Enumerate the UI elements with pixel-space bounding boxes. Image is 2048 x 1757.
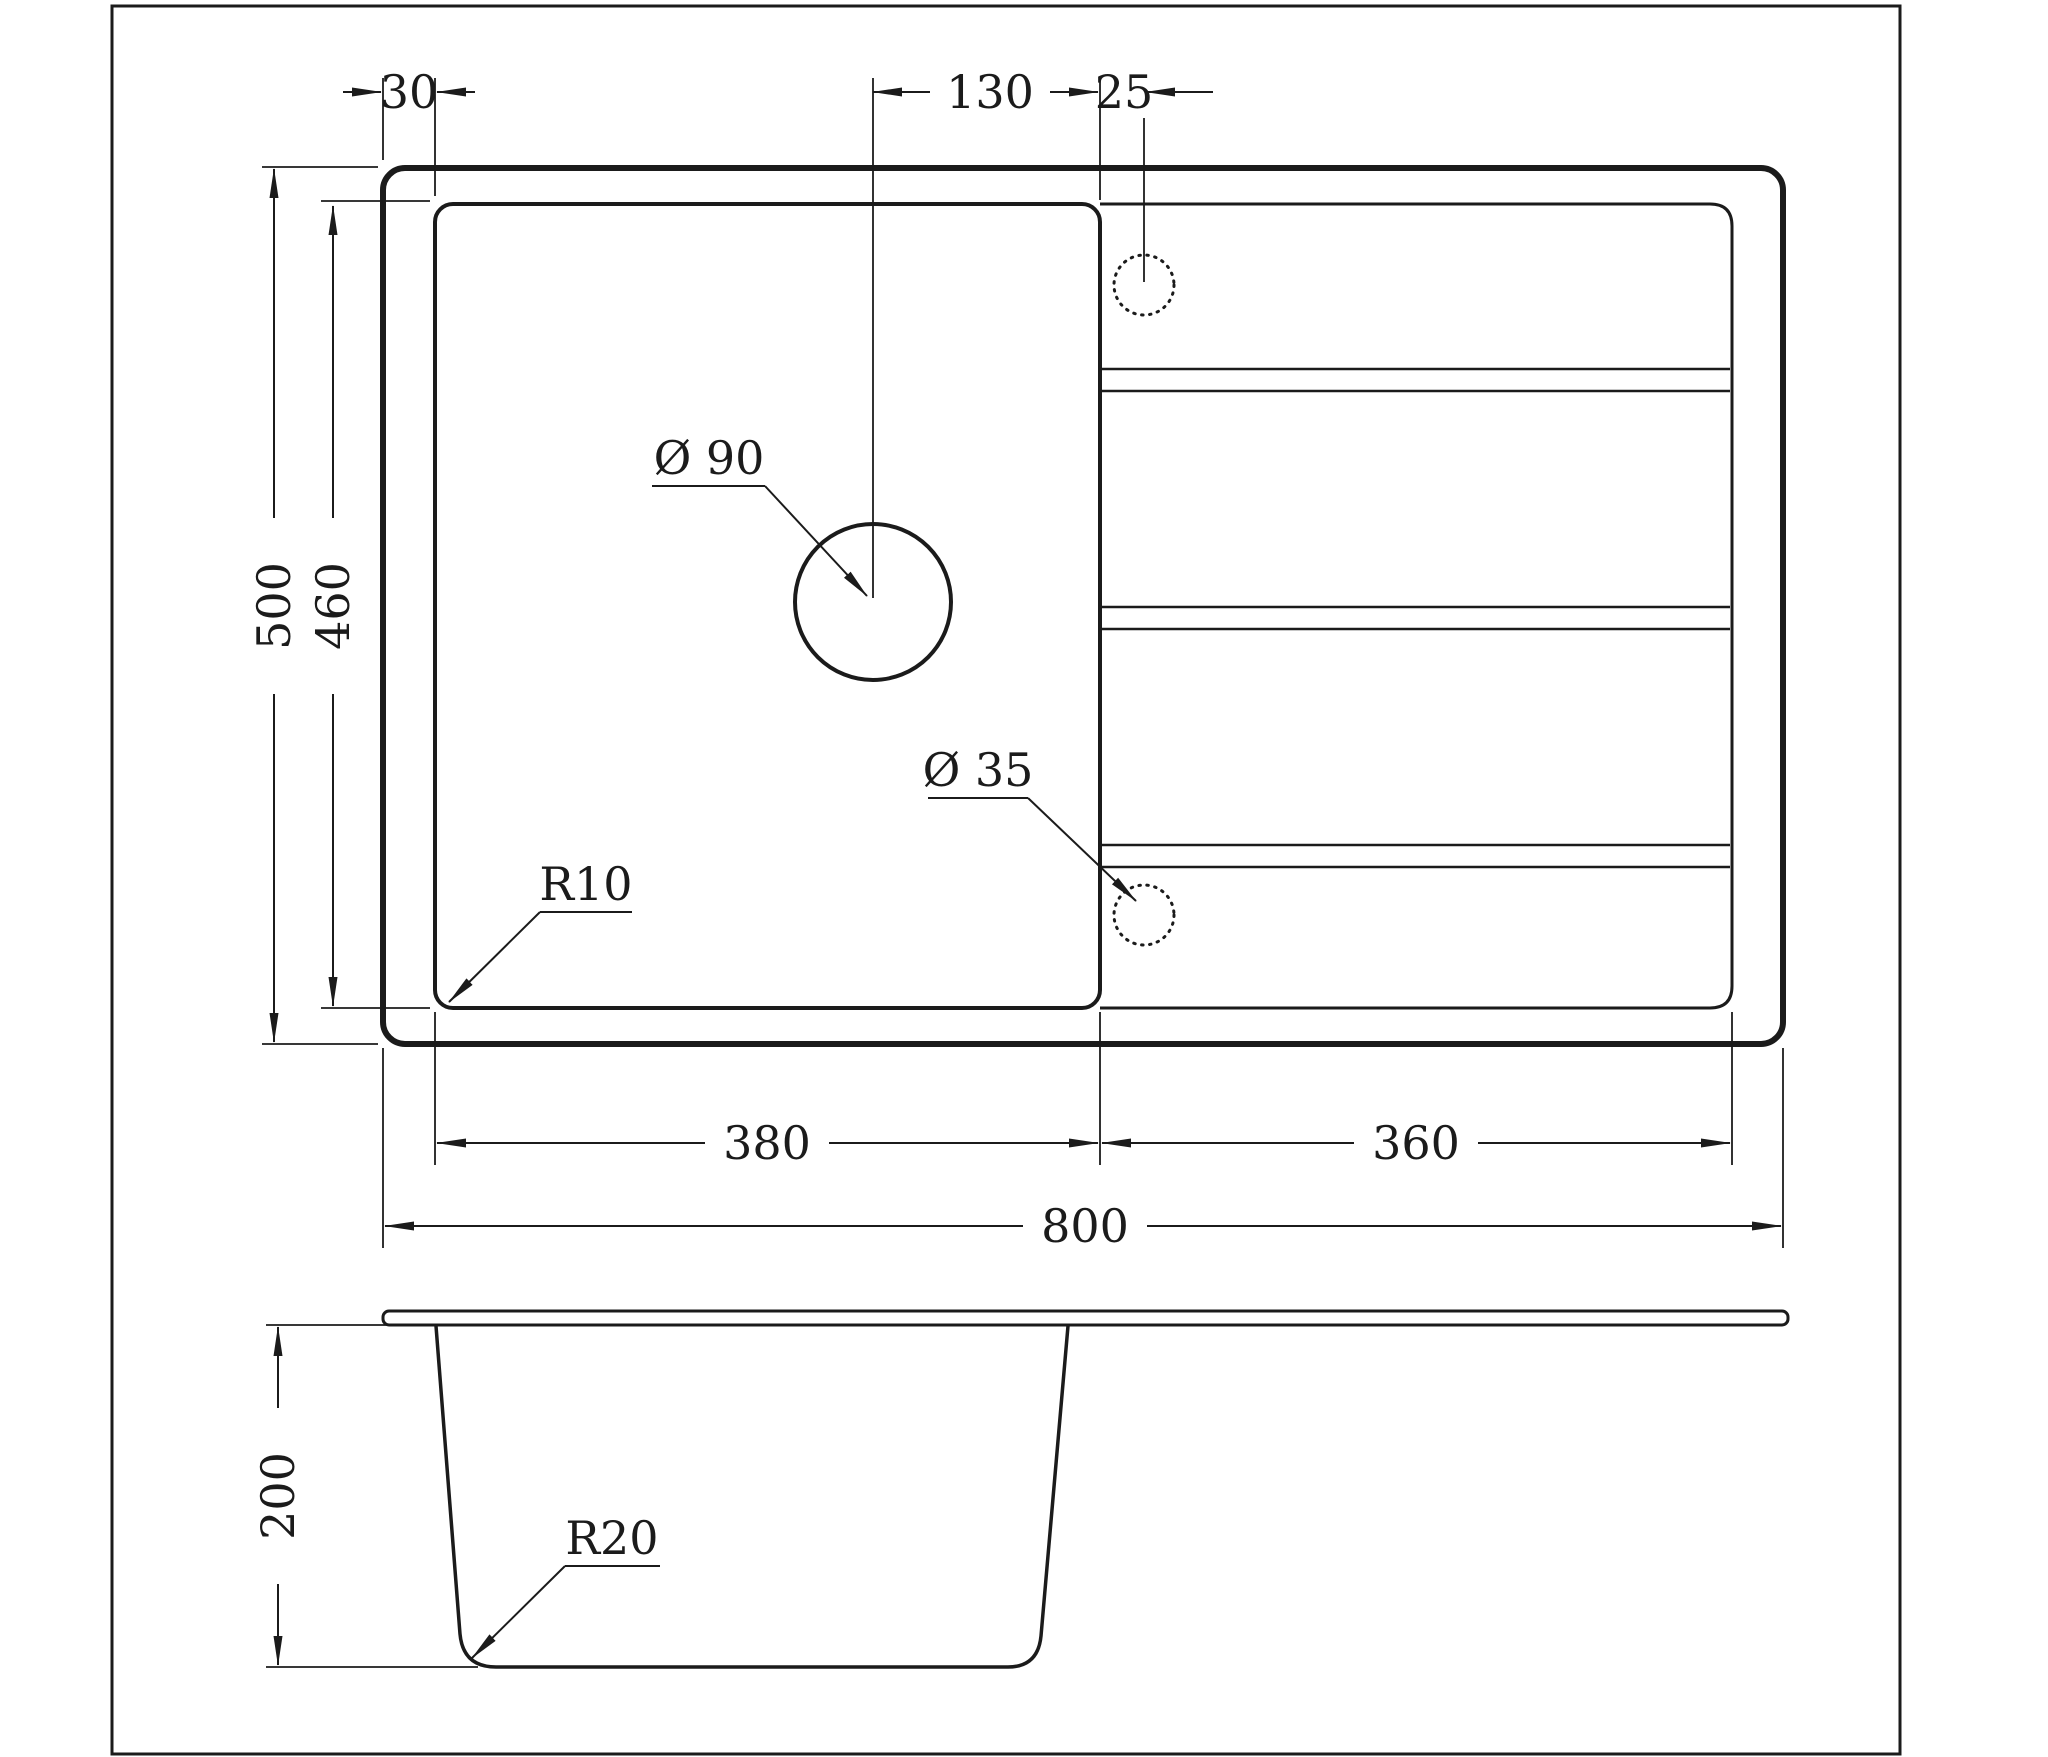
dim-30-label: 30 [380,65,439,119]
drawing-sheet: 30 130 25 500 460 380 360 [0,0,2048,1757]
dimension-row-bottom: 380 360 800 [383,1012,1783,1253]
sink-technical-drawing: 30 130 25 500 460 380 360 [0,0,2048,1757]
side-view-rim-slab [383,1311,1788,1325]
side-view-bowl-profile [436,1326,1068,1667]
dimension-col-left: 500 460 [247,167,430,1044]
dim-800-label: 800 [1041,1199,1129,1253]
drainboard-grooves [1102,369,1730,867]
callouts: Ø 90 Ø 35 R10 [449,431,1136,1002]
dim-25-label: 25 [1095,65,1154,119]
dim-460-label: 460 [306,562,360,650]
dim-360-label: 360 [1372,1116,1460,1170]
bottom-radius-callout: R20 [565,1511,658,1565]
dim-500-label: 500 [247,562,301,650]
tap-hole-callout: Ø 35 [923,743,1034,797]
sink-bowl [435,204,1100,1008]
side-view: 200 R20 [251,1311,1788,1667]
dim-200-label: 200 [251,1452,305,1540]
dim-130-label: 130 [946,65,1034,119]
bowl-radius-callout: R10 [539,857,632,911]
drain-hole-callout: Ø 90 [654,431,765,485]
dimension-row-top: 30 130 25 [343,65,1213,598]
tap-hole-bottom [1114,885,1174,945]
dim-380-label: 380 [723,1116,811,1170]
